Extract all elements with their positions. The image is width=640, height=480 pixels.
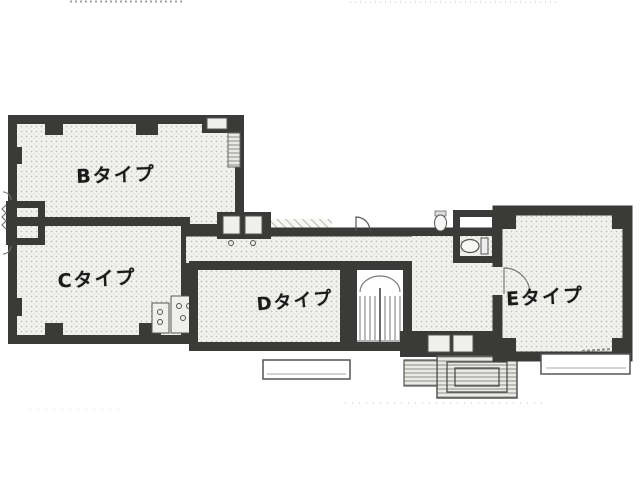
unit-e-door-gap (490, 267, 504, 295)
unit-d (193, 265, 350, 379)
bay-squiggle (2, 205, 6, 229)
column (136, 122, 158, 135)
shoe-cabinet (453, 335, 473, 352)
staircase (353, 266, 408, 347)
unit-e-label: Eタイプ (505, 280, 584, 311)
floor-plan-image: Bタイプ Cタイプ Dタイプ Eタイプ (0, 0, 640, 480)
toilet-icon (461, 238, 488, 254)
unit-c-label: Cタイプ (57, 262, 137, 293)
sink-icon (435, 211, 447, 231)
column (13, 298, 22, 316)
column (45, 122, 63, 135)
entrance-steps (404, 356, 517, 398)
column (13, 147, 22, 164)
floorplan-svg (0, 0, 640, 480)
shoe-cabinet (428, 335, 450, 352)
corner-column (612, 338, 626, 352)
corner-column (502, 215, 516, 229)
corner-column (502, 338, 516, 352)
balcony-d (263, 360, 350, 379)
corner-column (612, 215, 626, 229)
column (45, 323, 63, 336)
unit-b-label: Bタイプ (76, 159, 156, 189)
